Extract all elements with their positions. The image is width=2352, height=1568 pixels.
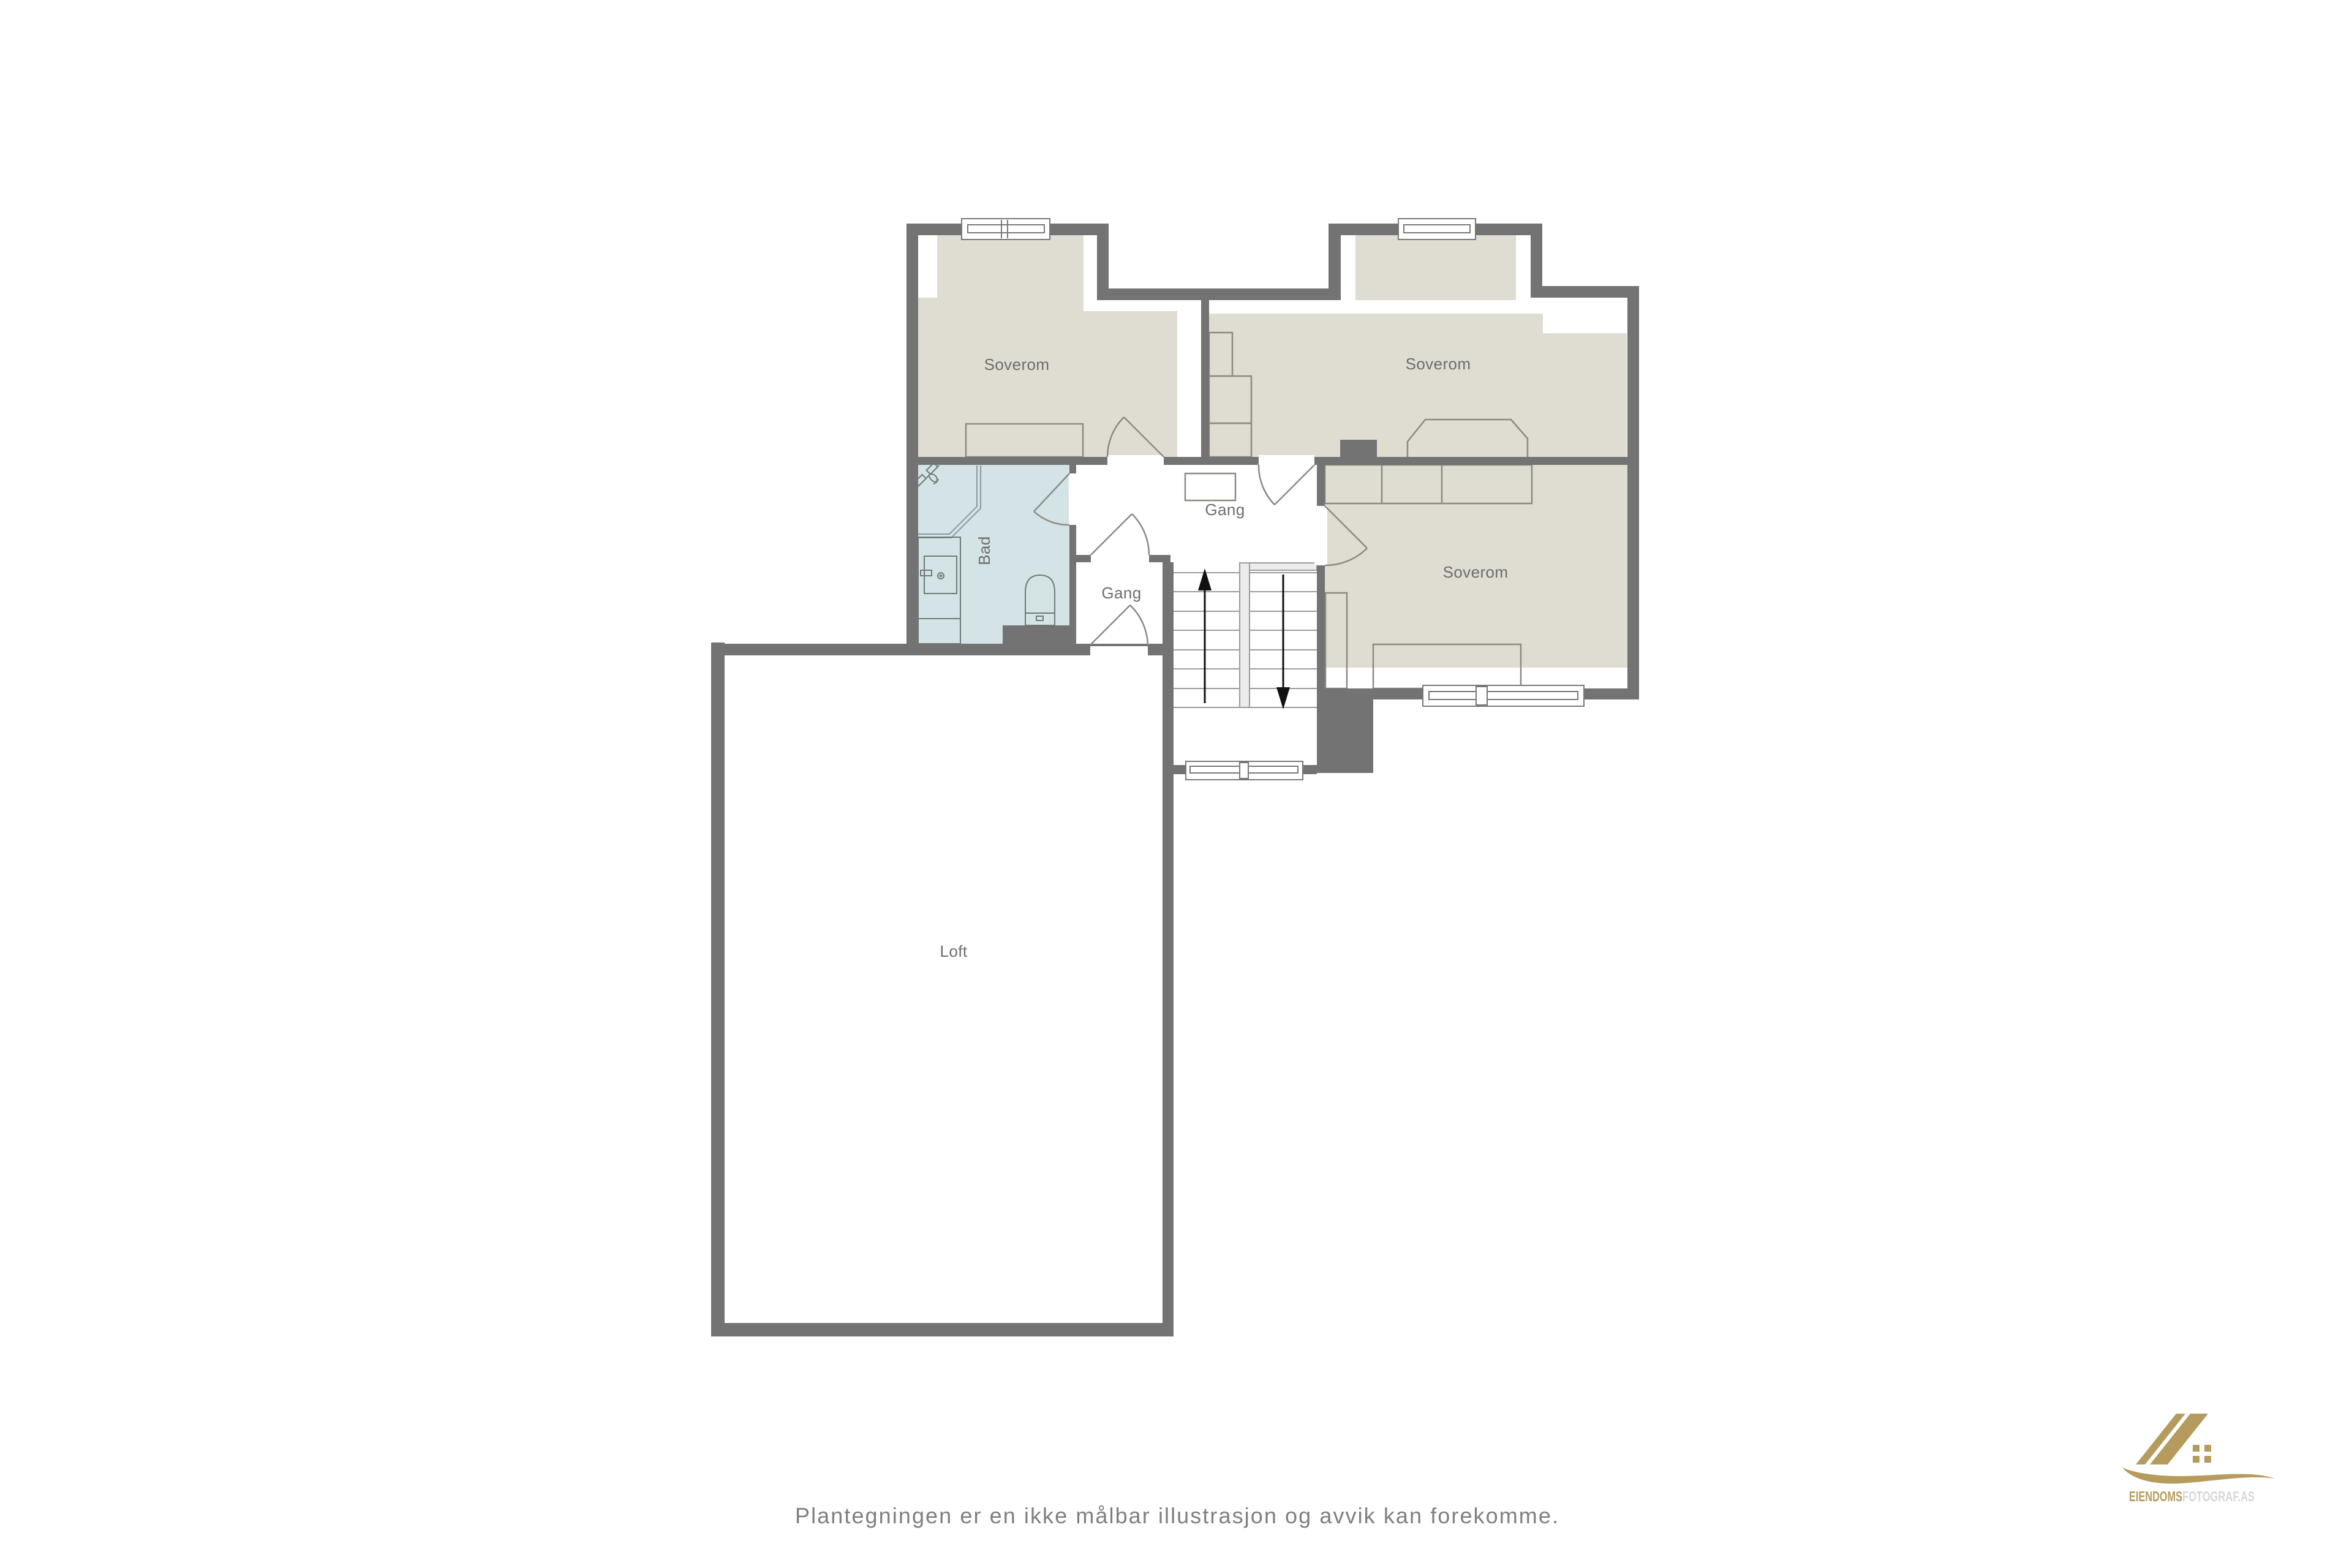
svg-text:EIENDOMS: EIENDOMS — [2129, 1488, 2182, 1504]
svg-text:Bad: Bad — [975, 536, 993, 565]
svg-text:FOTOGRAF.AS: FOTOGRAF.AS — [2182, 1488, 2255, 1504]
svg-text:Soverom: Soverom — [1443, 563, 1509, 581]
svg-text:Plantegningen er en ikke målba: Plantegningen er en ikke målbar illustra… — [795, 1503, 1558, 1528]
svg-text:Soverom: Soverom — [984, 355, 1050, 374]
svg-text:Gang: Gang — [1101, 584, 1141, 602]
svg-text:Loft: Loft — [940, 942, 968, 960]
svg-text:Gang: Gang — [1205, 500, 1245, 519]
svg-text:Soverom: Soverom — [1406, 355, 1471, 373]
